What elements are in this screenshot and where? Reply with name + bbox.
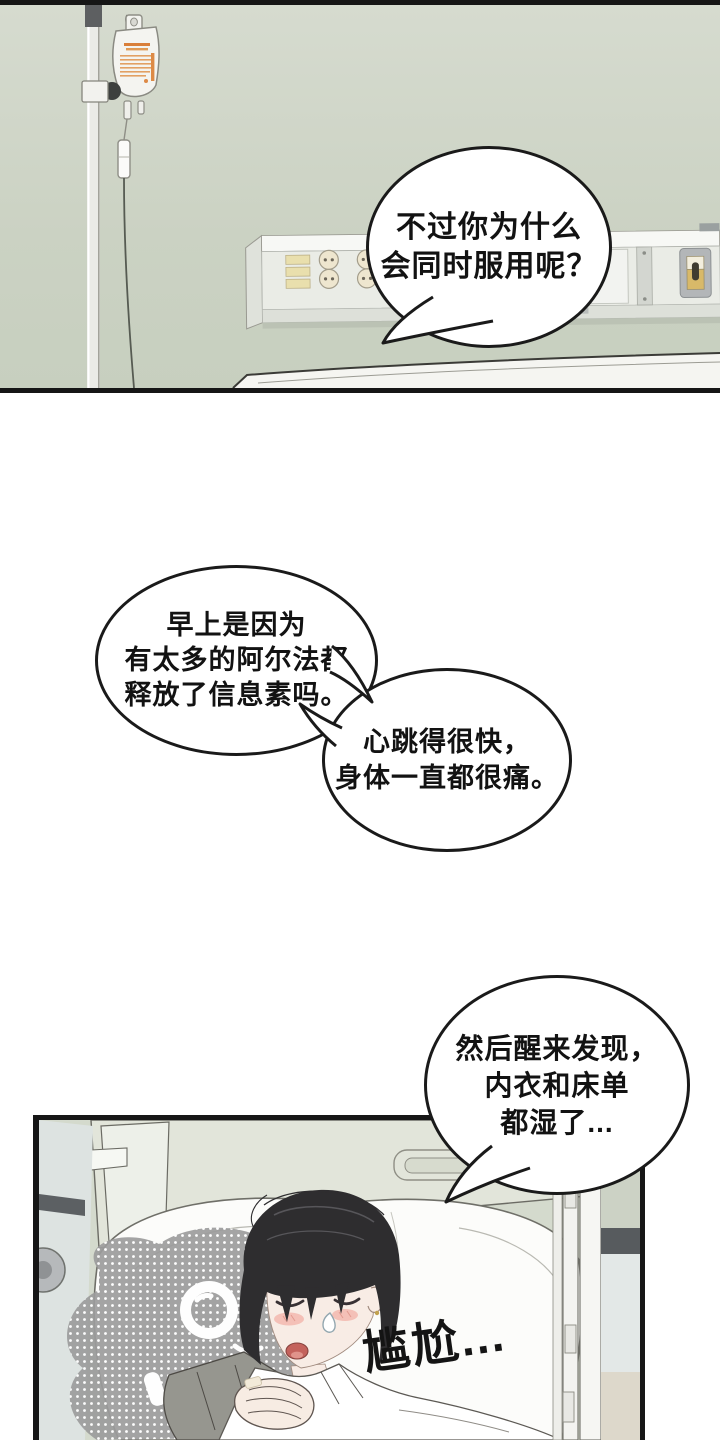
headboard-bracket <box>91 1148 127 1170</box>
headwall-end-cap <box>246 236 263 329</box>
rail-latch <box>565 1325 576 1353</box>
wall-bumper-rail <box>601 1228 640 1254</box>
bubble-tail <box>328 642 384 708</box>
bubble-text: 心跳得很快， 身体一直都很痛。 <box>335 724 559 796</box>
blush-right <box>332 1309 358 1321</box>
rail-latch <box>563 1392 574 1422</box>
panel-1-art <box>0 5 720 388</box>
bubble-tail <box>430 1140 540 1210</box>
iv-tube <box>124 178 134 388</box>
floor <box>601 1372 640 1440</box>
iv-pole-cap <box>85 5 102 27</box>
bubble-text: 早上是因为 有太多的阿尔法都 释放了信息素吗。 <box>125 608 349 713</box>
bubble-text: 然后醒来发现， 内衣和床单 都湿了... <box>455 1030 658 1141</box>
divider-strip <box>637 247 653 305</box>
iv-pole-clamp <box>82 81 121 102</box>
panel-hospital-wall <box>0 0 720 393</box>
bed-top-edge <box>233 353 720 388</box>
blush-left <box>274 1313 304 1326</box>
comic-page: 尴尬... 不过你为什么 会同时服用呢？ 早上是因为 有太多的阿尔法都 释放了信… <box>0 0 720 1440</box>
iv-drip-chamber <box>118 140 130 178</box>
iv-bag <box>113 15 159 388</box>
iv-port <box>138 101 144 114</box>
iv-port <box>124 101 131 119</box>
bubble-tail <box>375 295 505 350</box>
gas-outlet-labels <box>286 255 310 288</box>
light-switch <box>680 248 712 297</box>
bubble-tail <box>296 700 348 752</box>
bubble-text: 不过你为什么 会同时服用呢？ <box>381 208 598 286</box>
